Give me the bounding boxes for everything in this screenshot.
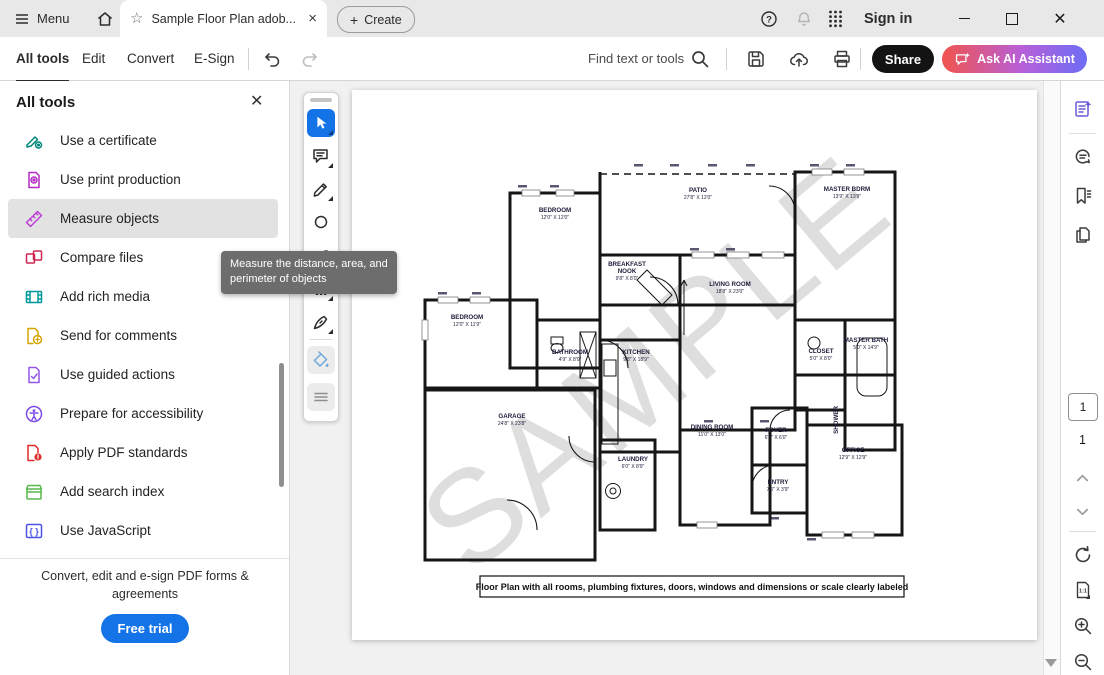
caret-icon: [328, 296, 333, 301]
panel-footer-text: Convert, edit and e-sign PDF forms & agr…: [25, 567, 265, 603]
more-lines-icon: [311, 387, 331, 407]
close-icon: ✕: [1053, 9, 1066, 29]
notifications-button[interactable]: [795, 0, 813, 37]
room-label: 4'9" X 8'0": [559, 357, 582, 363]
maximize-button[interactable]: [996, 0, 1028, 37]
panel-title: All tools: [16, 94, 75, 111]
tool-item-label: Add rich media: [60, 289, 150, 304]
tab-title: Sample Floor Plan adob...: [151, 12, 300, 26]
current-page: 1: [1080, 400, 1087, 414]
tools-panel-item-measure-objects[interactable]: Measure objects: [8, 199, 278, 238]
divider: [1069, 531, 1096, 532]
zoom-in-button[interactable]: [1073, 616, 1093, 636]
find-text-label[interactable]: Find text or tools: [588, 37, 684, 81]
bookmarks-panel-button[interactable]: [1073, 186, 1093, 206]
right-rail: 1 1 1:1: [1060, 81, 1104, 675]
scroll-down-arrow-icon[interactable]: [1045, 659, 1057, 667]
search-index-icon: [24, 482, 44, 502]
room-label: BATHROOM: [552, 349, 588, 356]
room-label: 5'0" X 8'0": [810, 356, 833, 362]
page-number-box[interactable]: 1: [1068, 393, 1098, 421]
room-label: BEDROOM: [451, 314, 483, 321]
room-label: CLOSET: [808, 348, 833, 355]
tool-item-label: Compare files: [60, 250, 143, 265]
nav-esign[interactable]: E-Sign: [194, 37, 235, 80]
room-label: DINING ROOM: [691, 424, 734, 431]
divider: [860, 48, 861, 70]
rotate-page-button[interactable]: [1073, 545, 1093, 565]
toolbar-drag-handle[interactable]: [310, 98, 332, 102]
grid-icon: [828, 9, 843, 28]
close-window-button[interactable]: ✕: [1044, 0, 1076, 37]
room-label: NOOK: [618, 268, 637, 275]
tool-item-label: Add search index: [60, 484, 164, 499]
save-icon: [746, 49, 766, 69]
menu-label: Menu: [37, 11, 70, 26]
room-label: OFFICE: [842, 447, 865, 454]
room-label: 12'0" X 11'9": [453, 322, 481, 328]
sign-in-button[interactable]: Sign in: [864, 0, 912, 37]
room-label: 6'0" X 8'9": [622, 464, 645, 470]
app-launcher-button[interactable]: [828, 0, 843, 37]
maximize-icon: [1006, 13, 1018, 25]
toolbar: All tools Edit Convert E-Sign Find text …: [0, 37, 1104, 81]
all-tools-panel: All tools ✕ Use a certificateUse print p…: [0, 81, 290, 675]
panel-close-icon[interactable]: ✕: [250, 91, 263, 111]
divider: [0, 558, 289, 559]
create-label: Create: [364, 13, 402, 27]
zoom-in-icon: [1073, 616, 1093, 636]
tool-item-label: Use print production: [60, 172, 181, 187]
measure-tooltip: Measure the distance, area, and perimete…: [221, 251, 397, 294]
ai-assistant-icon: [1073, 99, 1093, 119]
tool-item-label: Prepare for accessibility: [60, 406, 203, 421]
room-label: 9'8" X 18'9": [623, 357, 649, 363]
room-label: FOYER: [765, 427, 787, 434]
ai-assistant-panel-button[interactable]: [1073, 99, 1093, 119]
room-label: 9'8" X 8'0": [616, 276, 639, 282]
fill-color-bucket-button[interactable]: [307, 346, 335, 374]
previous-page-button[interactable]: [1075, 471, 1090, 486]
create-button[interactable]: + Create: [337, 6, 415, 33]
svg-text:1:1: 1:1: [1079, 589, 1087, 595]
divider: [248, 48, 249, 70]
room-label: 13'9" X 13'9": [833, 194, 861, 200]
share-label: Share: [885, 52, 921, 67]
measure-ruler-icon: [24, 209, 44, 229]
upload-cloud-button[interactable]: [789, 49, 809, 69]
document-tab[interactable]: ☆ Sample Floor Plan adob... ×: [120, 0, 327, 37]
tool-item-label: Send for comments: [60, 328, 177, 343]
help-button[interactable]: ?: [760, 0, 778, 37]
nav-convert[interactable]: Convert: [127, 37, 174, 80]
redo-button[interactable]: [300, 49, 320, 69]
accessibility-icon: [24, 404, 44, 424]
upload-cloud-icon: [789, 49, 809, 69]
room-label: ENTRY: [768, 479, 790, 486]
room-label: LIVING ROOM: [709, 281, 751, 288]
search-button[interactable]: [690, 49, 710, 69]
tools-panel-item-use-a-certificate[interactable]: Use a certificate: [8, 121, 278, 160]
fill-color-bucket-icon: [311, 350, 331, 370]
free-trial-button[interactable]: Free trial: [101, 614, 189, 643]
tools-panel-item-add-search-index[interactable]: Add search index: [8, 472, 278, 511]
page-copies-panel-button[interactable]: [1073, 225, 1093, 245]
caption-text: Floor Plan with all rooms, plumbing fixt…: [476, 582, 909, 592]
plus-icon: +: [350, 12, 358, 28]
zoom-out-button[interactable]: [1073, 652, 1093, 672]
one-to-one-page-icon: 1:1: [1073, 580, 1093, 600]
caret-icon: [328, 130, 333, 135]
fit-one-to-one-button[interactable]: 1:1: [1073, 580, 1093, 600]
page-copies-icon: [1073, 225, 1093, 245]
caret-icon: [328, 196, 333, 201]
add-comment-button[interactable]: [307, 142, 335, 170]
minimize-button[interactable]: [948, 0, 980, 37]
room-label: 11'0" X 13'0": [698, 432, 726, 438]
star-icon[interactable]: ☆: [130, 11, 143, 26]
room-label: 27'8" X 12'0": [684, 195, 712, 201]
draw-pencil-button[interactable]: [307, 175, 335, 203]
tools-panel-item-prepare-for-accessibility[interactable]: Prepare for accessibility: [8, 394, 278, 433]
divider: [310, 339, 332, 340]
comments-icon: [1073, 147, 1093, 167]
pdf-page[interactable]: SAMPLE: [352, 90, 1037, 640]
guided-actions-icon: [24, 365, 44, 385]
print-production-icon: [24, 170, 44, 190]
send-comments-icon: [24, 326, 44, 346]
room-label: BREAKFAST: [608, 261, 646, 268]
pdf-standards-icon: [24, 443, 44, 463]
zoom-out-icon: [1073, 652, 1093, 672]
room-label: 7'6" X 3'9": [767, 487, 790, 493]
tools-panel-item-apply-pdf-standards[interactable]: Apply PDF standards: [8, 433, 278, 472]
compare-files-icon: [24, 248, 44, 268]
print-icon: [832, 49, 852, 69]
select-cursor-button[interactable]: [307, 109, 335, 137]
hamburger-icon: [14, 11, 30, 27]
divider: [1069, 133, 1096, 134]
divider: [726, 48, 727, 70]
ask-ai-assistant-button[interactable]: Ask AI Assistant: [942, 45, 1087, 73]
tools-panel-item-use-print-production[interactable]: Use print production: [8, 160, 278, 199]
next-page-button[interactable]: [1075, 504, 1090, 519]
svg-text:{ }: { }: [29, 526, 39, 536]
ask-ai-label: Ask AI Assistant: [977, 52, 1075, 66]
chevron-down-icon: [1075, 504, 1090, 519]
undo-button[interactable]: [262, 49, 282, 69]
chevron-up-icon: [1075, 471, 1090, 486]
svg-text:?: ?: [766, 14, 772, 25]
highlight-button[interactable]: [307, 208, 335, 236]
room-label: MASTER BDRM: [824, 186, 870, 193]
tools-panel-item-use-javascript[interactable]: { }Use JavaScript: [8, 511, 278, 550]
tools-panel-item-send-for-comments[interactable]: Send for comments: [8, 316, 278, 355]
floor-plan-drawing: SAMPLE: [352, 90, 1037, 640]
total-pages: 1: [1061, 433, 1104, 447]
save-button[interactable]: [746, 49, 766, 69]
room-label: 12'9" X 12'9": [839, 455, 867, 461]
ai-chat-icon: [954, 51, 971, 68]
room-label: MASTER BATH: [844, 337, 889, 344]
room-label: SHOWER: [833, 406, 840, 434]
caret-icon: [328, 163, 333, 168]
free-trial-label: Free trial: [118, 621, 173, 636]
javascript-icon: { }: [24, 521, 44, 541]
tool-item-label: Use JavaScript: [60, 523, 151, 538]
certificate-icon: [24, 131, 44, 151]
room-label: 24'8" X 23'8": [498, 421, 526, 427]
highlight-icon: [311, 212, 331, 232]
rich-media-icon: [24, 287, 44, 307]
tool-item-label: Measure objects: [60, 211, 159, 226]
minimize-icon: [959, 18, 970, 19]
tools-panel-item-use-guided-actions[interactable]: Use guided actions: [8, 355, 278, 394]
room-label: KITCHEN: [622, 349, 650, 356]
room-label: 6'0" X 6'0": [765, 435, 788, 441]
undo-icon: [262, 49, 282, 69]
tab-close-icon[interactable]: ×: [308, 11, 317, 26]
sign-in-label: Sign in: [864, 11, 912, 27]
rotate-icon: [1073, 545, 1093, 565]
search-icon: [690, 49, 710, 69]
menu-button[interactable]: Menu: [14, 0, 70, 37]
print-button[interactable]: [832, 49, 852, 69]
nav-edit[interactable]: Edit: [82, 37, 105, 80]
nav-all-tools[interactable]: All tools: [16, 37, 69, 82]
bookmarks-icon: [1073, 186, 1093, 206]
redo-icon: [300, 49, 320, 69]
room-label: LAUNDRY: [618, 456, 649, 463]
help-icon: ?: [760, 10, 778, 28]
caret-icon: [328, 329, 333, 334]
room-label: BEDROOM: [539, 207, 571, 214]
comments-panel-button[interactable]: [1073, 147, 1093, 167]
share-button[interactable]: Share: [872, 45, 934, 73]
room-label: 12'0" X 12'0": [541, 215, 569, 221]
home-icon: [96, 10, 114, 28]
document-canvas[interactable]: SAMPLE: [290, 81, 1060, 675]
panel-scrollbar[interactable]: [279, 363, 284, 487]
titlebar: Menu ☆ Sample Floor Plan adob... × + Cre…: [0, 0, 1104, 37]
tool-item-label: Apply PDF standards: [60, 445, 188, 460]
bell-icon: [795, 10, 813, 28]
tool-item-label: Use a certificate: [60, 133, 157, 148]
room-label: PATIO: [689, 187, 707, 194]
room-label: 5'0" X 14'9": [853, 345, 879, 351]
more-lines-button[interactable]: [307, 383, 335, 411]
document-scrollbar[interactable]: [1043, 81, 1060, 675]
home-button[interactable]: [96, 0, 114, 37]
tool-item-label: Use guided actions: [60, 367, 175, 382]
room-label: 18'8" X 23'0": [716, 289, 744, 295]
fill-sign-pen-button[interactable]: [307, 308, 335, 336]
room-label: GARAGE: [498, 413, 525, 420]
